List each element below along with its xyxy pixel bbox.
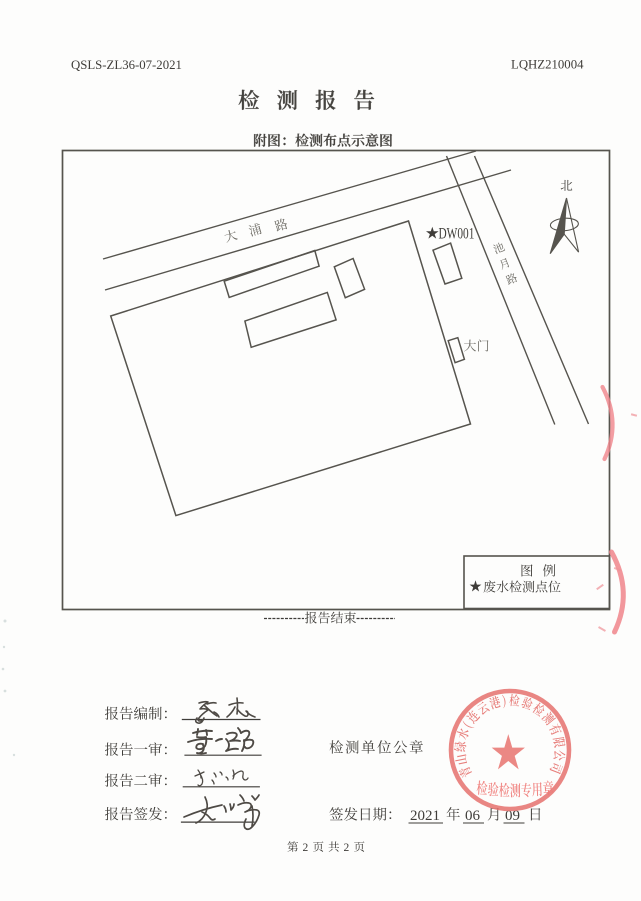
svg-text:2: 2 <box>344 842 350 854</box>
svg-text:LQHZ210004: LQHZ210004 <box>511 58 584 72</box>
svg-text:2021: 2021 <box>410 808 440 824</box>
svg-text:QSLS-ZL36-07-2021: QSLS-ZL36-07-2021 <box>71 58 182 72</box>
svg-text:DW001: DW001 <box>439 226 475 243</box>
svg-text:2: 2 <box>303 842 309 854</box>
svg-text:06: 06 <box>465 808 481 824</box>
